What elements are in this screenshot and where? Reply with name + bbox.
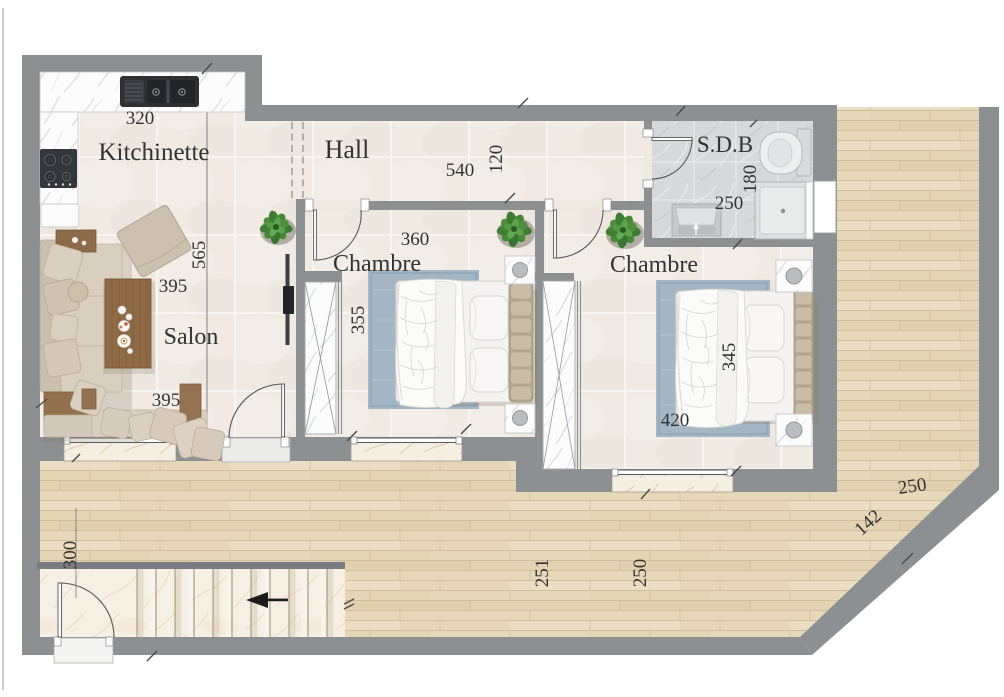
- svg-text:420: 420: [661, 410, 690, 431]
- svg-text:S.D.B: S.D.B: [697, 132, 753, 157]
- svg-text:565: 565: [189, 241, 210, 270]
- svg-text:180: 180: [740, 165, 761, 194]
- svg-text:Hall: Hall: [325, 135, 370, 164]
- svg-text:Kitchinette: Kitchinette: [98, 139, 209, 166]
- svg-text:250: 250: [715, 193, 744, 214]
- svg-text:540: 540: [446, 160, 475, 181]
- svg-text:250: 250: [630, 559, 651, 588]
- svg-text:345: 345: [719, 343, 740, 372]
- svg-text:395: 395: [159, 276, 188, 297]
- svg-text:355: 355: [348, 306, 369, 335]
- svg-text:300: 300: [60, 541, 81, 570]
- svg-text:251: 251: [532, 559, 553, 588]
- svg-text:Salon: Salon: [164, 324, 219, 350]
- svg-text:Chambre: Chambre: [610, 252, 698, 278]
- svg-text:Chambre: Chambre: [333, 251, 421, 277]
- svg-text:395: 395: [152, 390, 181, 411]
- svg-text:120: 120: [486, 145, 507, 174]
- svg-text:360: 360: [401, 229, 430, 250]
- svg-text:320: 320: [126, 108, 155, 129]
- svg-text:250: 250: [897, 474, 928, 499]
